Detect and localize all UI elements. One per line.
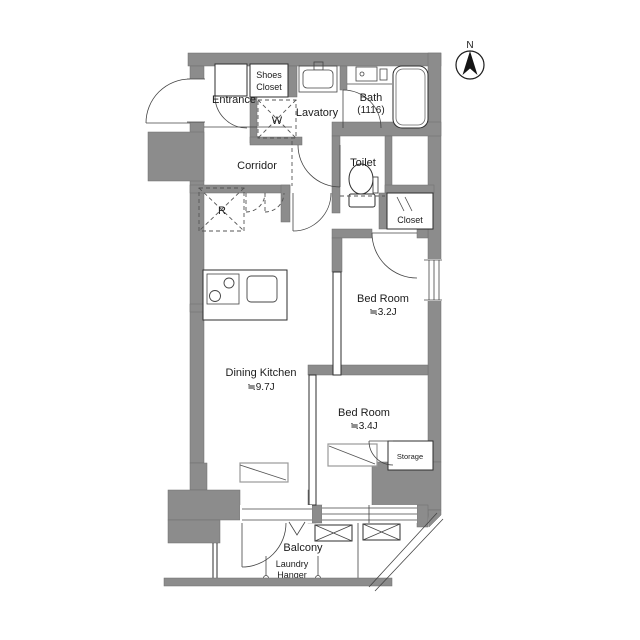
stove xyxy=(207,274,239,304)
wall-bedroom1-bottom xyxy=(308,365,428,375)
bath-label: Bath xyxy=(360,92,383,104)
wall-left-bump xyxy=(148,132,204,181)
toilet-fixture xyxy=(349,164,378,207)
laundry-hanger: Laundry Hanger xyxy=(264,556,321,581)
balcony-railing xyxy=(164,578,392,586)
wall-corridor-south xyxy=(190,185,290,193)
bedroom1-window xyxy=(424,259,442,301)
entrance-opening xyxy=(187,79,207,122)
bath: Bath (1116) xyxy=(343,66,428,128)
closet: Closet xyxy=(387,193,433,229)
storage-label: Storage xyxy=(397,452,423,461)
dk-window-counter xyxy=(240,463,288,482)
dining-kitchen-door-arc xyxy=(293,193,331,231)
wall-closet-left xyxy=(379,193,387,229)
wall-bedroom1-west xyxy=(332,238,342,272)
lavatory-label: Lavatory xyxy=(296,107,339,119)
entrance-door xyxy=(146,79,207,123)
cabinet-doors-dashed xyxy=(246,193,284,212)
wall-toilet-right xyxy=(385,136,392,193)
refrigerator-space: R xyxy=(199,188,244,231)
wall-bedroom2-dk-thin xyxy=(309,375,316,505)
floorplan-svg: Shoes Closet W Lavatory Bath (1116) xyxy=(0,0,640,640)
bedroom1-label: Bed Room xyxy=(357,293,409,305)
shoes-closet-cabinet xyxy=(215,64,247,96)
shoes-closet-label-box xyxy=(250,64,288,97)
bedroom1-size: ≒3.2J xyxy=(369,307,396,318)
bedroom2-size: ≒3.4J xyxy=(350,421,377,432)
wall-post-kitchen xyxy=(281,185,290,222)
wall-bedroom1-top-left xyxy=(332,229,372,238)
dining-kitchen-label: Dining Kitchen xyxy=(226,367,297,379)
cabinet-door-arc xyxy=(246,193,265,212)
ac-outdoor-unit-2 xyxy=(363,524,400,540)
wall-bedroom1-top-right xyxy=(417,229,428,238)
washing-machine-space: W xyxy=(258,100,296,138)
fridge-label: R xyxy=(218,205,226,217)
wall-bottom-left-1 xyxy=(190,463,207,490)
wall-bath-left xyxy=(340,66,347,90)
bedroom1-door-arc xyxy=(372,233,417,278)
wall-bottom-left-3 xyxy=(168,520,220,543)
bath-fixture xyxy=(356,67,377,81)
balcony-label: Balcony xyxy=(283,542,323,554)
bathtub xyxy=(393,66,428,128)
bedroom-2: Bed Room ≒3.4J Storage xyxy=(328,407,433,470)
bath-faucet-knob xyxy=(360,72,364,76)
wall-right-tip xyxy=(428,510,441,527)
wall-bedroom1-dk-thin xyxy=(333,272,341,375)
vanity-sink xyxy=(303,70,333,88)
washer-label: W xyxy=(272,115,283,127)
dining-kitchen: Dining Kitchen ≒9.7J xyxy=(226,367,297,482)
compass: N xyxy=(456,40,484,79)
bath-size-label: (1116) xyxy=(357,105,384,116)
wall-closet-top xyxy=(385,185,434,193)
floorplan-canvas: Shoes Closet W Lavatory Bath (1116) xyxy=(0,0,640,640)
entrance-label: Entrance xyxy=(212,94,256,106)
wall-toilet-left xyxy=(332,136,340,213)
wall-band-stub xyxy=(312,505,322,523)
room-labels: Entrance xyxy=(212,94,256,106)
toilet: Toilet xyxy=(298,145,385,207)
laundry-label-1: Laundry xyxy=(276,559,309,569)
bedroom2-label: Bed Room xyxy=(338,407,390,419)
dining-kitchen-size: ≒9.7J xyxy=(247,382,274,393)
closet-label: Closet xyxy=(397,215,423,225)
wall-left-top xyxy=(190,66,204,79)
toilet-handle xyxy=(373,177,378,193)
wall-bottom-left-2 xyxy=(168,490,240,520)
shoes-closet-label-1: Shoes xyxy=(256,70,282,80)
ac-outdoor-unit-1 xyxy=(315,525,352,541)
entrance-door-arc xyxy=(146,79,190,123)
shoes-closet-label-2: Closet xyxy=(256,82,282,92)
window-swing-mark xyxy=(289,522,305,535)
bath-fixture-small xyxy=(380,69,387,80)
compass-north-label: N xyxy=(466,40,473,51)
corridor-label: Corridor xyxy=(237,160,277,172)
wall-right xyxy=(428,53,441,462)
kitchen-counter xyxy=(203,270,287,320)
toilet-label: Toilet xyxy=(350,157,376,169)
kitchen-sink xyxy=(247,276,277,302)
wall-band-right-stub xyxy=(417,505,428,527)
